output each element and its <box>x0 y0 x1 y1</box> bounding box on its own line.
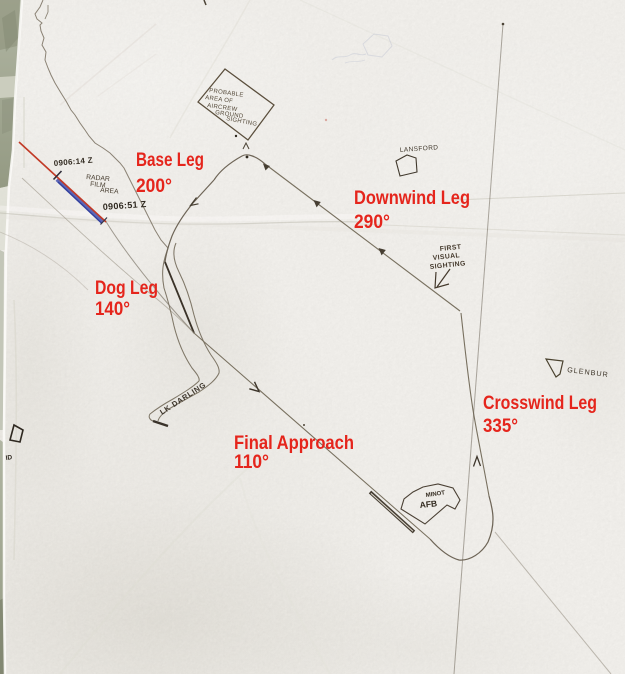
svg-text:AFB: AFB <box>419 498 437 510</box>
svg-text:Final Approach: Final Approach <box>234 433 354 454</box>
svg-text:110°: 110° <box>234 452 269 473</box>
svg-text:Downwind Leg: Downwind Leg <box>354 188 470 209</box>
svg-text:335°: 335° <box>483 416 518 437</box>
svg-text:Base Leg: Base Leg <box>136 150 204 171</box>
svg-text:200°: 200° <box>136 176 172 197</box>
svg-text:140°: 140° <box>95 299 130 320</box>
svg-text:ID: ID <box>5 454 13 462</box>
svg-text:Dog Leg: Dog Leg <box>95 278 158 299</box>
svg-text:290°: 290° <box>354 212 390 233</box>
svg-text:Crosswind Leg: Crosswind Leg <box>483 393 597 414</box>
